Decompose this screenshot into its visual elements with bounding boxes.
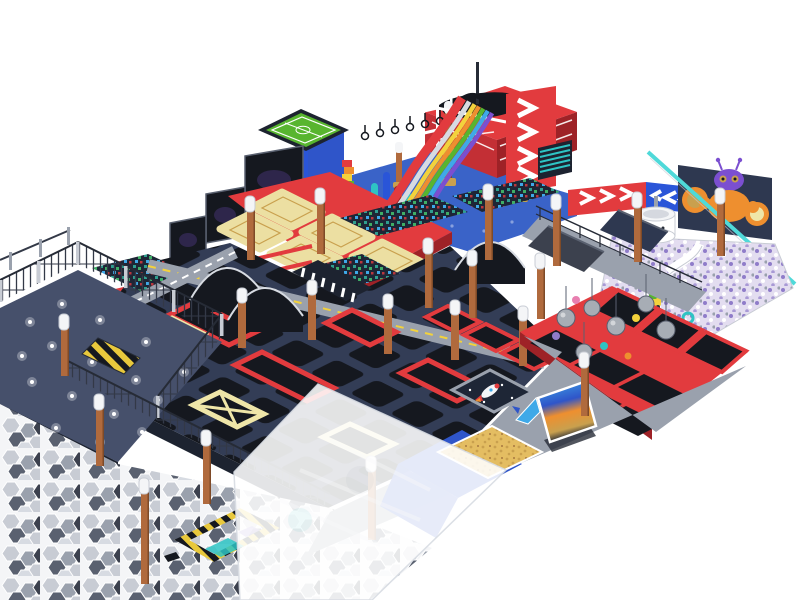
robot-body [708,190,750,222]
screenshot-canvas: 3D isometric render of an indoor trampol… [0,0,800,600]
trampoline-park-render: 3D isometric render of an indoor trampol… [0,0,800,600]
